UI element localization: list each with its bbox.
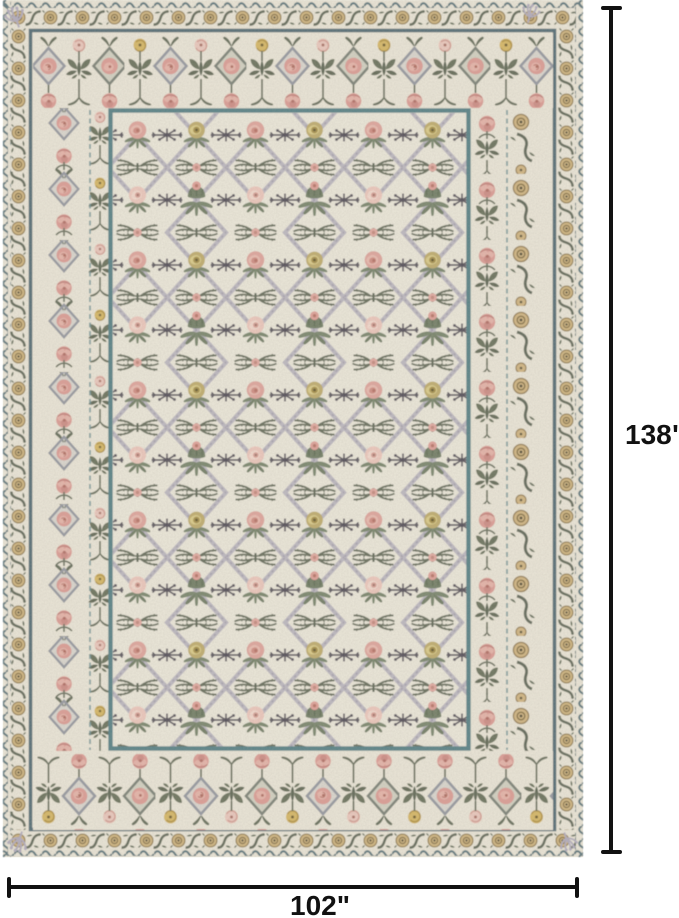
svg-text:102": 102" [290, 890, 350, 918]
svg-text:138": 138" [625, 419, 679, 450]
